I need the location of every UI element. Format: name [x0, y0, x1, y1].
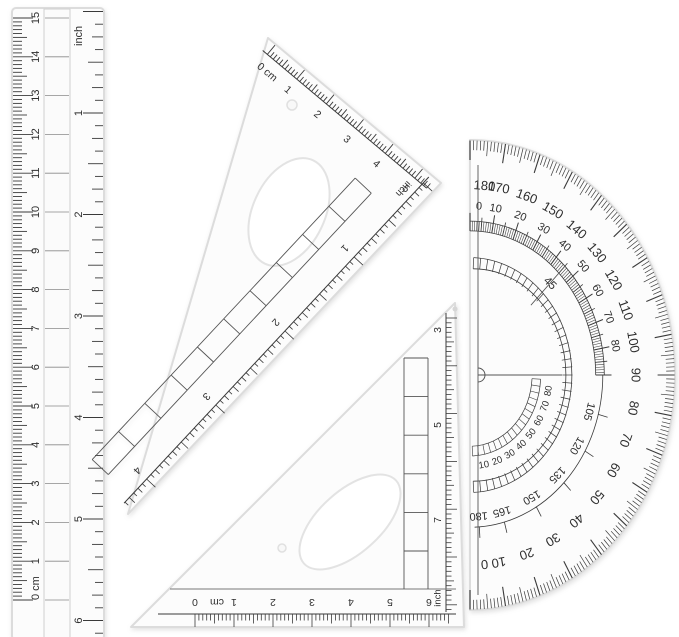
ruler-cm-label: 14	[30, 51, 42, 63]
ruler-cm-label: 12	[30, 128, 42, 140]
ruler-cm-label: 0 cm	[30, 576, 42, 600]
rim-tick	[666, 387, 674, 388]
protractor-outer-label: 90	[629, 368, 644, 382]
ruler-inch-label: 5	[73, 516, 85, 522]
ruler-cm-label: 1	[30, 558, 42, 564]
small-bottom-label: 5	[387, 596, 393, 608]
small-bottom-label: 4	[348, 596, 354, 608]
small-bottom-label: 0	[192, 596, 198, 608]
small-edge-unit: inch	[433, 589, 444, 606]
corner-pin-mark	[453, 307, 458, 312]
protractor-reversed-label: 80	[542, 385, 555, 397]
ruler-cm-label: 8	[30, 287, 42, 293]
small-edge-label: 3	[432, 327, 444, 333]
ruler-cm-label: 6	[30, 364, 42, 370]
protractor-inner-label: 10	[489, 202, 503, 216]
protractor-inner-label: 80	[608, 339, 622, 353]
ruler-cm-label: 10	[30, 206, 42, 218]
ruler-cm-label: 15	[30, 12, 42, 24]
small-bottom-label: 1	[231, 596, 237, 608]
ruler-cm-label: 4	[30, 442, 42, 448]
set-square-small-hole	[278, 544, 286, 552]
ruler-inch-unit: inch	[73, 26, 85, 46]
small-edge-label: 5	[432, 422, 444, 428]
ruler-inch-label: 3	[73, 313, 85, 319]
protractor-inner-label: 0	[476, 200, 483, 212]
protractor-outer-label: 80	[625, 400, 642, 417]
ruler-cm-label: 5	[30, 403, 42, 409]
ruler-inch-label: 4	[73, 414, 85, 420]
ruler-cm-label: 3	[30, 481, 42, 487]
cell-divider	[119, 431, 135, 446]
ruler-cm-label: 7	[30, 325, 42, 331]
protractor-outer-label: 0	[480, 557, 489, 573]
protractor-reversed-label: 10	[478, 459, 490, 472]
ruler-inch-label: 6	[73, 617, 85, 623]
set-square-large-hole	[287, 100, 297, 110]
ruler-inch-label: 1	[73, 110, 85, 116]
rim-tick	[666, 363, 674, 364]
ruler-center-channel	[44, 9, 70, 637]
geometry-set-photo: 0 cm123456789101112131415inch123456 0 cm…	[0, 0, 679, 637]
small-bottom-unit: cm	[210, 596, 224, 608]
small-bottom-label: 6	[426, 596, 432, 608]
small-edge-label: 7	[432, 517, 444, 523]
ruler-cm-label: 13	[30, 89, 42, 101]
small-bottom-label: 3	[309, 596, 315, 608]
ruler-cm-label: 2	[30, 519, 42, 525]
protractor-outer-label: 10	[490, 554, 507, 571]
ruler-inch-label: 2	[73, 211, 85, 217]
small-bottom-label: 2	[270, 596, 276, 608]
ruler-cm-label: 9	[30, 248, 42, 254]
protractor-lower-label: 180	[469, 509, 488, 522]
inch-tick	[125, 502, 128, 505]
protractor: 1801701601501401301201101009080706050403…	[469, 140, 675, 610]
ruler-cm-label: 11	[30, 167, 42, 178]
ruler: 0 cm123456789101112131415inch123456	[12, 8, 104, 637]
